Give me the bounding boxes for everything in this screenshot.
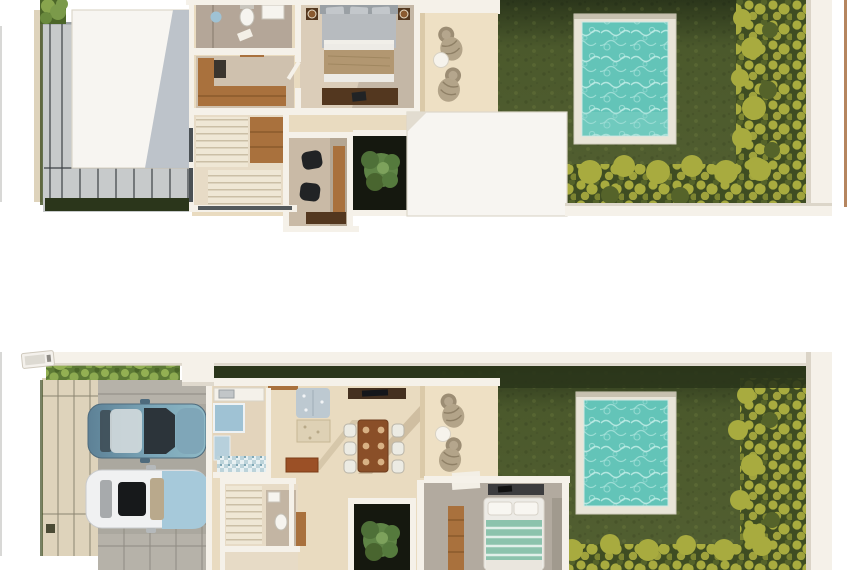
- mirror: [146, 465, 156, 470]
- dining-chair: [344, 442, 356, 455]
- bathroom: [196, 3, 292, 49]
- drain-grate: [46, 524, 55, 533]
- sliding-door-glass: [198, 206, 292, 210]
- car-roof: [110, 409, 142, 453]
- office-chair: [299, 182, 321, 202]
- car-front-glass: [162, 471, 208, 529]
- neighbor-plot-line: [844, 0, 847, 207]
- sun-terrace: [420, 378, 500, 478]
- pool: [576, 392, 676, 514]
- staircase: [194, 115, 283, 205]
- mirror: [140, 458, 150, 463]
- stair-flight-lower: [208, 170, 281, 205]
- window: [189, 168, 193, 202]
- floorplan-render: Two-storey villa floor plans (3D top vie…: [0, 0, 850, 570]
- windshield: [144, 408, 175, 454]
- terrace-top-wall: [420, 378, 500, 386]
- hood: [176, 408, 204, 454]
- floorplan-svg: Two-storey villa floor plans (3D top vie…: [0, 0, 850, 570]
- dining-chair: [344, 460, 356, 473]
- ground-floor-plan: [0, 350, 832, 570]
- study-sideboard: [306, 212, 346, 224]
- stair-landing-wood: [250, 117, 283, 163]
- sunroof: [118, 482, 146, 516]
- rear-hedge-band: [212, 366, 440, 378]
- white-car: [86, 465, 208, 533]
- ac-unit: [21, 350, 54, 368]
- mosaic-counter: [217, 456, 269, 474]
- tree-patio: [354, 504, 410, 570]
- sink-icon: [268, 492, 280, 502]
- rear-window: [100, 480, 112, 518]
- laptop-icon: [352, 91, 367, 101]
- bed-foot: [486, 560, 542, 570]
- entry-pier-shade: [182, 382, 214, 386]
- rear-roof: [407, 112, 567, 216]
- main-roof: [72, 10, 190, 168]
- rug: [297, 420, 330, 442]
- mirror: [140, 399, 150, 404]
- pool-frame-shadow: [574, 14, 676, 19]
- blue-car: [88, 399, 206, 463]
- pool-frame-shadow: [576, 392, 676, 397]
- lamp-icon: [400, 10, 408, 18]
- wardrobe-dark-unit: [214, 60, 226, 78]
- vanity: [262, 5, 284, 19]
- side-table: [434, 53, 449, 68]
- plot-edge-line: [0, 26, 2, 202]
- dining-chair: [392, 424, 404, 437]
- terrace-shadow: [420, 386, 425, 478]
- window: [189, 128, 193, 162]
- pool-shallow-end: [582, 112, 668, 136]
- tree-patio: [353, 136, 410, 210]
- sun-terrace: [416, 0, 500, 112]
- dashboard: [150, 478, 164, 520]
- study-desk: [333, 146, 345, 220]
- upper-floor-plan: [0, 0, 847, 232]
- pool-water: [584, 400, 668, 506]
- master-bedroom: [300, 0, 414, 108]
- lamp-icon: [308, 10, 316, 18]
- side-table: [436, 427, 451, 442]
- sink-icon: [211, 12, 222, 23]
- door-leaf: [296, 512, 306, 546]
- upper-house: [186, 0, 420, 232]
- sink-icon: [219, 390, 234, 398]
- stair-flight-upper: [196, 117, 248, 167]
- terrace-shadow: [420, 13, 425, 112]
- pillow: [514, 502, 538, 515]
- wood-deck-strip: [448, 506, 464, 570]
- hedge-edge-line: [40, 20, 43, 205]
- hedge-edge-line: [40, 380, 43, 556]
- study: [289, 138, 347, 226]
- double-bed: [320, 4, 398, 82]
- pool: [574, 14, 676, 144]
- fridge: [214, 404, 244, 432]
- double-bed: [484, 498, 544, 570]
- rear-bedroom: [417, 471, 570, 570]
- blanket: [486, 520, 542, 564]
- ground-house: [206, 366, 440, 570]
- driveway: [40, 378, 98, 556]
- plot-edge-line: [0, 352, 2, 556]
- toilet-icon: [240, 8, 254, 26]
- toilet-icon: [275, 514, 287, 530]
- mirror: [146, 528, 156, 533]
- shower-screen: [212, 5, 214, 49]
- walk-in-closet: [196, 49, 294, 108]
- tv-icon: [498, 486, 512, 493]
- dining-chair: [392, 460, 404, 473]
- tv-console: [488, 484, 544, 495]
- pillow: [488, 502, 512, 515]
- corner-hedge: [40, 0, 68, 24]
- kitchen-island: [286, 458, 318, 472]
- terrace-top-wall: [416, 0, 500, 14]
- floor-shade: [552, 498, 562, 570]
- dining-chair: [344, 424, 356, 437]
- entry-pier: [182, 352, 214, 386]
- dining-chair: [392, 442, 404, 455]
- stair-flight: [226, 486, 262, 544]
- carport: [86, 380, 210, 570]
